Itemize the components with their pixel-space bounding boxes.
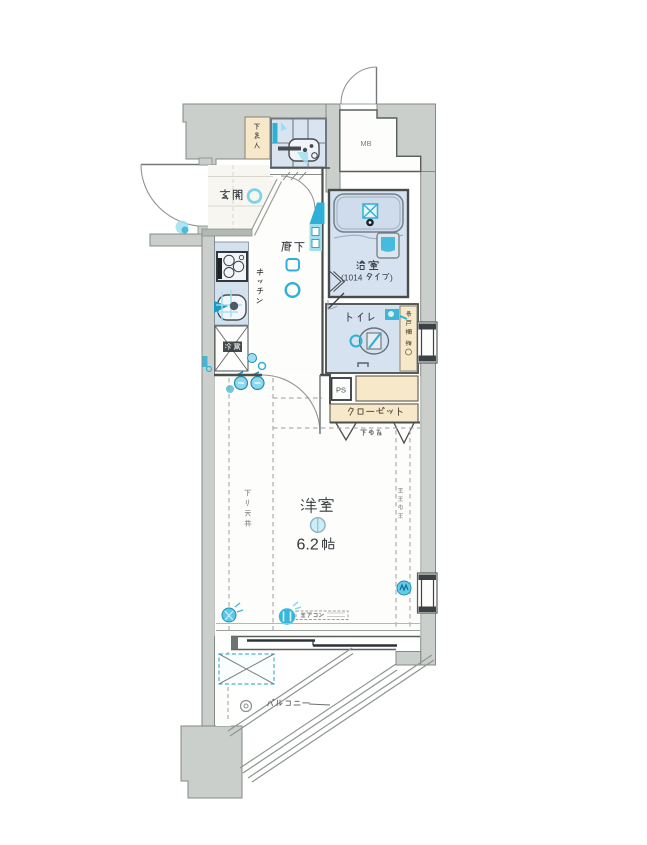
svg-text:PS: PS [336, 386, 346, 395]
svg-text:MB: MB [360, 139, 371, 148]
svg-text:6.2: 6.2 [297, 537, 319, 554]
svg-text:): ) [390, 273, 393, 283]
